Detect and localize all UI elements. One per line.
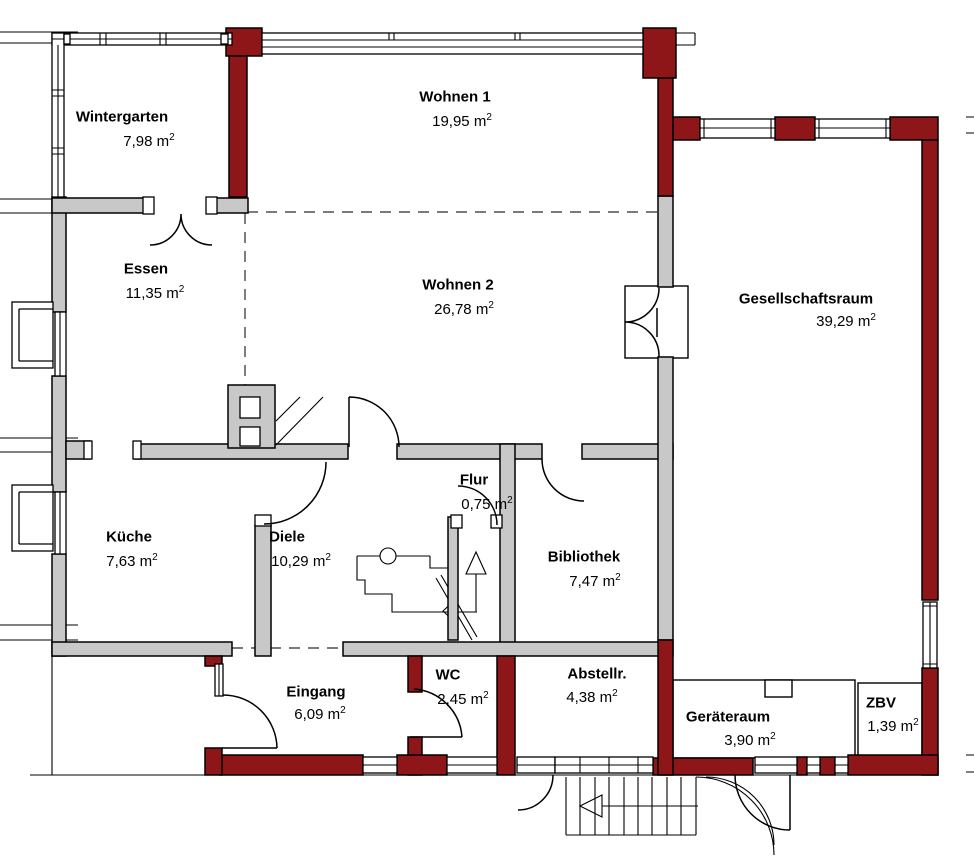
room-area-abstellraum: 4,38 m2 [566, 688, 617, 706]
room-name-diele: Diele [269, 529, 305, 546]
room-area-wohnen-1: 19,95 m2 [432, 112, 492, 130]
room-area-wc: 2,45 m2 [437, 690, 488, 708]
room-area-bibliothek: 7,47 m2 [569, 572, 620, 590]
walls-brick [205, 28, 938, 775]
room-name-abstellraum: Abstellr. [567, 666, 626, 683]
room-name-eingang: Eingang [286, 684, 345, 701]
interior-stairs-icon [357, 548, 486, 640]
room-area-wintergarten: 7,98 m2 [123, 132, 174, 150]
room-area-zbv: 1,39 m2 [867, 717, 918, 735]
room-area-flur: 0,75 m2 [461, 495, 512, 513]
room-name-wohnen-1: Wohnen 1 [419, 89, 490, 106]
room-name-essen: Essen [124, 261, 168, 278]
floorplan-canvas: Wintergarten 7,98 m2 Wohnen 1 19,95 m2 E… [0, 0, 974, 868]
room-name-wintergarten: Wintergarten [76, 109, 168, 126]
floorplan-svg [0, 0, 974, 868]
room-name-wc: WC [436, 667, 461, 684]
room-name-gesellschaftsraum: Gesellschaftsraum [739, 291, 873, 308]
room-area-gesellschaftsraum: 39,29 m2 [816, 312, 876, 330]
room-name-bibliothek: Bibliothek [548, 549, 621, 566]
room-area-essen: 11,35 m2 [126, 284, 185, 302]
room-area-kueche: 7,63 m2 [106, 552, 157, 570]
room-area-diele: 10,29 m2 [271, 552, 331, 570]
room-name-zbv: ZBV [866, 695, 896, 712]
room-name-kueche: Küche [106, 529, 152, 546]
exterior-stairs-icon [566, 777, 774, 855]
room-name-flur: Flur [460, 472, 488, 489]
room-area-wohnen-2: 26,78 m2 [434, 300, 494, 318]
room-area-eingang: 6,09 m2 [294, 705, 345, 723]
room-name-wohnen-2: Wohnen 2 [422, 277, 493, 294]
room-area-geraeteraum: 3,90 m2 [724, 731, 775, 749]
room-name-geraeteraum: Geräteraum [686, 709, 770, 726]
